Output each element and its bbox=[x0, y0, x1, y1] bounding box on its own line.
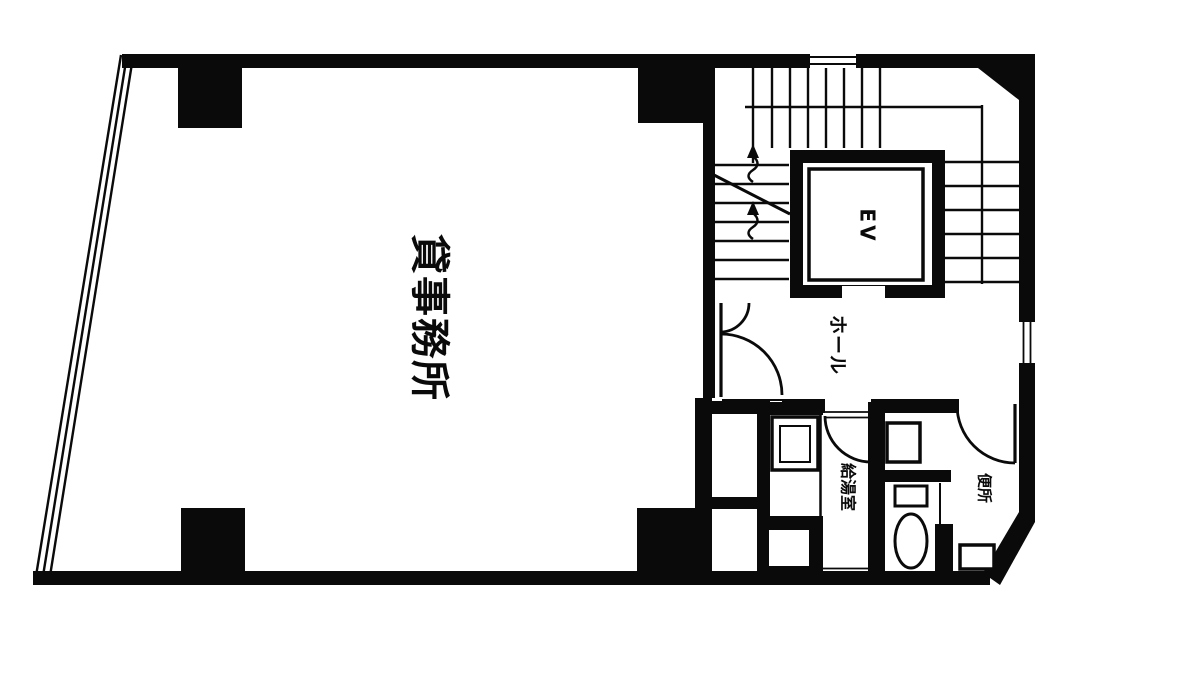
bottom-wall bbox=[33, 571, 990, 585]
sink-room-top-wall bbox=[770, 402, 823, 415]
toilet-label: 便所 bbox=[976, 473, 994, 503]
pillar-top-right bbox=[638, 60, 715, 123]
kitchenette-toilet-wall bbox=[868, 402, 885, 578]
pillar-top-left bbox=[178, 60, 242, 128]
stair-direction-arrow bbox=[747, 201, 759, 239]
toilet-tank bbox=[895, 486, 927, 506]
toilet-stall-wall bbox=[935, 524, 953, 578]
shaft-room-divider-wall bbox=[712, 497, 757, 509]
elevator-shaft: EV bbox=[790, 150, 945, 298]
elevator-label: EV bbox=[856, 208, 880, 243]
door-swing-arc bbox=[957, 405, 1015, 463]
kitchenette-label: 給湯室 bbox=[839, 463, 858, 511]
elevator-door-gap bbox=[842, 286, 885, 298]
office-right-wall bbox=[703, 120, 715, 398]
top-wall bbox=[122, 54, 1035, 68]
hall-entrance-door bbox=[721, 303, 782, 397]
window-wall-line bbox=[50, 57, 133, 576]
toilet-entrance-door bbox=[957, 404, 1015, 463]
door-swing-arc bbox=[721, 334, 782, 395]
right-wall bbox=[1019, 54, 1035, 522]
toilet-vestibule-wall bbox=[883, 470, 951, 482]
toilet-bowl bbox=[895, 514, 927, 568]
floor-plan-drawing: EV bbox=[0, 0, 1181, 694]
service-area-left-wall bbox=[695, 398, 712, 578]
office-label: 貸事務所 bbox=[406, 234, 452, 402]
kitchenette-door bbox=[825, 412, 871, 462]
pillar-bottom-right bbox=[637, 508, 702, 584]
shaft-room-top-wall bbox=[712, 401, 757, 414]
hall-label: ホール bbox=[827, 315, 849, 375]
stairwell-corner-chamfer bbox=[978, 68, 1019, 100]
utility-fixture bbox=[960, 545, 994, 569]
pillar-bottom-left bbox=[181, 508, 245, 584]
floor-plan-page: EV bbox=[0, 0, 1181, 694]
hand-wash-sink bbox=[887, 423, 920, 462]
door-swing-arc bbox=[825, 416, 871, 462]
left-window-wall bbox=[36, 55, 133, 576]
window-wall-line bbox=[43, 55, 127, 576]
top-window bbox=[810, 52, 856, 70]
window-wall-line bbox=[36, 55, 121, 576]
door-swing-arc-small bbox=[721, 303, 749, 332]
storage-inset-box bbox=[768, 529, 810, 567]
side-window bbox=[1019, 322, 1035, 363]
